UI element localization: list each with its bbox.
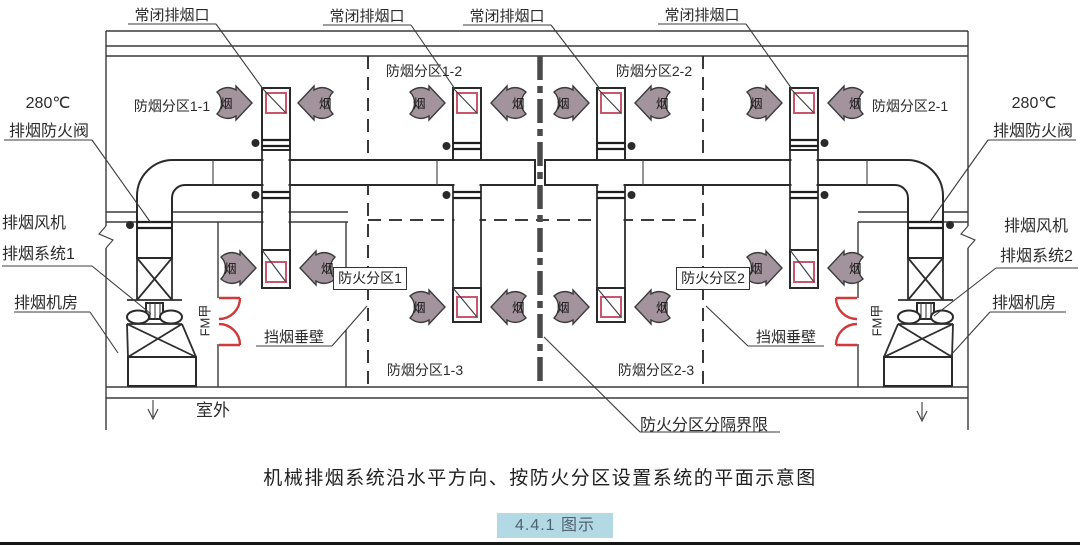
label-smoke-zone-1-3: 防烟分区1-3 <box>365 360 485 380</box>
label-fire-zone-2: 防火分区2 <box>676 267 750 290</box>
label-smoke-curtain-right: 挡烟垂壁 <box>748 326 824 347</box>
svg-text:烟: 烟 <box>656 301 669 315</box>
wall-break-icon <box>99 226 975 248</box>
svg-text:烟: 烟 <box>319 97 332 111</box>
branch-duct-zone-2-1 <box>790 150 818 253</box>
smoke-arrow-icon: 烟 <box>410 86 445 120</box>
smoke-arrow-icon: 烟 <box>300 251 335 285</box>
label-smoke-zone-2-1: 防烟分区2-1 <box>850 96 970 116</box>
smoke-arrow-icon: 烟 <box>410 290 445 324</box>
smoke-vent-icon <box>790 88 829 150</box>
label-exhaust-fan-left: 排烟风机 <box>2 209 66 233</box>
svg-text:烟: 烟 <box>849 262 862 276</box>
smoke-arrow-icon: 烟 <box>635 290 670 324</box>
svg-text:烟: 烟 <box>750 97 763 111</box>
smoke-arrow-icon: 烟 <box>828 251 863 285</box>
smoke-arrow-icon: 烟 <box>554 290 589 324</box>
svg-text:烟: 烟 <box>413 97 426 111</box>
label-normally-closed-vent-1: 常闭排烟口 <box>112 4 232 25</box>
label-outdoor: 室外 <box>196 396 230 421</box>
smoke-exhaust-plan-diagram: 烟 烟 烟 烟 烟 烟 烟 烟 烟 烟 烟 烟 烟 烟 烟 烟 常闭排烟口 常闭… <box>0 0 1080 545</box>
label-fire-zone-boundary: 防火分区分隔界限 <box>640 411 768 435</box>
label-fire-door-left: FM甲 <box>195 301 214 341</box>
smoke-vent-icon <box>443 88 482 160</box>
outdoor-arrow-icon <box>917 402 927 421</box>
fire-door-icon <box>219 298 240 345</box>
smoke-vent-icon <box>252 88 291 150</box>
label-fire-damper-left: 排烟防火阀 <box>2 117 96 141</box>
label-smoke-zone-1-1: 防烟分区1-1 <box>112 96 232 116</box>
smoke-arrow-icon: 烟 <box>221 251 256 285</box>
svg-text:烟: 烟 <box>557 97 570 111</box>
label-exhaust-fan-right: 排烟风机 <box>1004 212 1068 236</box>
label-smoke-zone-2-3: 防烟分区2-3 <box>596 360 716 380</box>
fire-door-icon <box>836 298 857 345</box>
svg-text:烟: 烟 <box>321 262 334 276</box>
smoke-arrow-icon: 烟 <box>554 86 589 120</box>
svg-text:烟: 烟 <box>656 97 669 111</box>
label-fire-damper-right: 排烟防火阀 <box>986 117 1080 141</box>
exhaust-fan-icon <box>127 258 196 386</box>
figure-number-badge: 4.4.1 图示 <box>497 513 613 538</box>
svg-text:烟: 烟 <box>750 262 763 276</box>
svg-text:烟: 烟 <box>557 301 570 315</box>
label-exhaust-system-1: 排烟系统1 <box>2 240 75 264</box>
label-fan-room-right: 排烟机房 <box>992 289 1056 313</box>
label-damper-temp-right: 280℃ <box>994 93 1074 113</box>
smoke-arrow-icon: 烟 <box>491 86 526 120</box>
label-fire-zone-1: 防火分区1 <box>333 267 407 290</box>
svg-text:烟: 烟 <box>224 262 237 276</box>
label-smoke-zone-1-2: 防烟分区1-2 <box>364 61 484 81</box>
label-fire-door-right: FM甲 <box>867 301 886 341</box>
exhaust-fan-icon <box>884 258 953 386</box>
smoke-arrow-icon: 烟 <box>747 86 782 120</box>
branch-duct-zone-1-1 <box>262 150 290 253</box>
svg-text:烟: 烟 <box>512 301 525 315</box>
outdoor-arrow-icon <box>148 400 158 419</box>
smoke-arrow-icon: 烟 <box>747 251 782 285</box>
label-normally-closed-vent-3: 常闭排烟口 <box>447 5 567 26</box>
label-exhaust-system-2: 排烟系统2 <box>1000 242 1073 266</box>
label-damper-temp-left: 280℃ <box>8 93 88 113</box>
label-normally-closed-vent-2: 常闭排烟口 <box>307 5 427 26</box>
smoke-vent-icon <box>597 88 636 160</box>
smoke-arrow-icon: 烟 <box>298 86 333 120</box>
svg-text:烟: 烟 <box>512 97 525 111</box>
label-smoke-zone-2-2: 防烟分区2-2 <box>594 61 714 81</box>
figure-caption: 机械排烟系统沿水平方向、按防火分区设置系统的平面示意图 <box>0 463 1080 490</box>
label-fan-room-left: 排烟机房 <box>14 289 78 313</box>
smoke-arrow-icon: 烟 <box>491 290 526 324</box>
label-smoke-curtain-left: 挡烟垂壁 <box>256 326 332 347</box>
label-normally-closed-vent-4: 常闭排烟口 <box>642 4 762 25</box>
smoke-arrow-icon: 烟 <box>635 86 670 120</box>
svg-text:烟: 烟 <box>413 301 426 315</box>
